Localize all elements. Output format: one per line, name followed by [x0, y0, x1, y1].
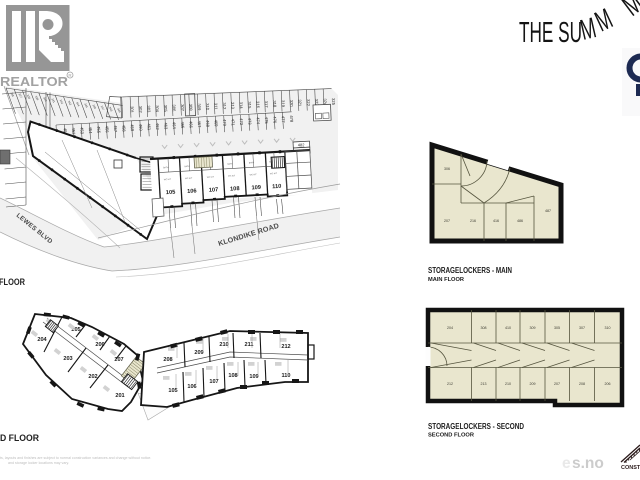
- svg-text:D FLOOR: D FLOOR: [0, 433, 39, 444]
- svg-text:106: 106: [187, 188, 197, 195]
- svg-text:477: 477: [281, 116, 286, 124]
- svg-text:305: 305: [554, 326, 560, 330]
- svg-text:473: 473: [247, 118, 252, 126]
- svg-text:206: 206: [95, 342, 104, 348]
- svg-text:204: 204: [447, 326, 453, 330]
- svg-text:216: 216: [470, 219, 476, 223]
- svg-text:460: 460: [138, 124, 143, 132]
- svg-text:106: 106: [187, 384, 196, 390]
- svg-text:466: 466: [188, 121, 193, 129]
- svg-text:105: 105: [168, 388, 177, 394]
- svg-text:467: 467: [197, 120, 202, 128]
- svg-text:475: 475: [264, 117, 269, 125]
- svg-text:202: 202: [88, 374, 97, 380]
- svg-text:213: 213: [481, 382, 487, 386]
- svg-text:470: 470: [222, 119, 227, 127]
- svg-text:410: 410: [505, 326, 511, 330]
- svg-text:487: 487: [545, 209, 551, 213]
- svg-text:465: 465: [180, 121, 185, 129]
- svg-text:210: 210: [219, 342, 228, 348]
- svg-text:107: 107: [209, 187, 219, 194]
- svg-text:476: 476: [272, 116, 277, 124]
- svg-text:309: 309: [530, 326, 536, 330]
- svg-text:469: 469: [214, 119, 219, 127]
- svg-text:416: 416: [493, 219, 499, 223]
- svg-text:107: 107: [209, 379, 218, 385]
- svg-text:REALTOR: REALTOR: [0, 74, 69, 89]
- svg-text:207: 207: [444, 219, 450, 223]
- svg-text:208: 208: [163, 357, 172, 363]
- svg-text:310: 310: [605, 326, 611, 330]
- svg-text:306: 306: [444, 167, 450, 171]
- svg-text:208: 208: [579, 382, 585, 386]
- svg-text:472: 472: [239, 118, 244, 126]
- svg-text:108: 108: [228, 373, 237, 379]
- svg-text:452: 452: [71, 127, 76, 135]
- svg-text:CONST: CONST: [621, 465, 640, 471]
- svg-text:486: 486: [517, 219, 523, 223]
- svg-text:212: 212: [447, 382, 453, 386]
- svg-text:207: 207: [554, 382, 560, 386]
- svg-text:209: 209: [194, 350, 203, 356]
- svg-text:BATH: BATH: [163, 166, 169, 169]
- svg-text:458: 458: [121, 125, 126, 133]
- svg-text:MAIN FLOOR: MAIN FLOOR: [428, 277, 464, 283]
- svg-text:110: 110: [272, 184, 282, 191]
- svg-text:325: 325: [331, 98, 336, 106]
- svg-text:478: 478: [289, 115, 294, 123]
- svg-text:209: 209: [530, 382, 536, 386]
- svg-text:474: 474: [255, 117, 260, 125]
- svg-text:462: 462: [155, 123, 160, 131]
- svg-text:308: 308: [481, 326, 487, 330]
- svg-text:206: 206: [605, 382, 611, 386]
- svg-text:207: 207: [114, 357, 123, 363]
- svg-text:482: 482: [298, 142, 306, 147]
- svg-text:457: 457: [113, 125, 118, 133]
- svg-text:109: 109: [249, 374, 258, 380]
- svg-text:459: 459: [130, 124, 135, 132]
- svg-text:STORAGELOCKERS - SECOND: STORAGELOCKERS - SECOND: [428, 422, 524, 431]
- svg-text:109: 109: [251, 185, 261, 192]
- svg-text:463: 463: [163, 122, 168, 130]
- svg-text:471: 471: [230, 119, 235, 127]
- svg-text:s.no: s.no: [572, 455, 604, 472]
- svg-text:204: 204: [37, 337, 47, 343]
- svg-text:454: 454: [88, 127, 93, 135]
- svg-text:455: 455: [96, 126, 101, 134]
- svg-text:FLOOR: FLOOR: [0, 277, 25, 288]
- svg-text:e: e: [562, 455, 571, 472]
- svg-text:THE SU: THE SU: [519, 17, 582, 49]
- svg-text:STORAGELOCKERS - MAIN: STORAGELOCKERS - MAIN: [428, 266, 512, 275]
- svg-text:105: 105: [166, 190, 176, 197]
- svg-text:461: 461: [146, 123, 151, 131]
- svg-text:110: 110: [281, 373, 290, 379]
- svg-text:ts, layouts and finishes are s: ts, layouts and finishes are subject to …: [0, 456, 151, 460]
- svg-text:SECOND FLOOR: SECOND FLOOR: [428, 433, 474, 439]
- svg-text:210: 210: [505, 382, 511, 386]
- svg-text:468: 468: [205, 120, 210, 128]
- svg-text:and storage locker locations m: and storage locker locations may vary.: [8, 461, 69, 465]
- svg-text:BATH: BATH: [249, 161, 255, 164]
- svg-text:307: 307: [579, 326, 585, 330]
- svg-text:456: 456: [105, 126, 110, 134]
- svg-text:201: 201: [115, 393, 124, 399]
- svg-text:464: 464: [172, 122, 177, 130]
- svg-text:108: 108: [230, 186, 240, 193]
- svg-text:453: 453: [79, 127, 84, 135]
- svg-text:203: 203: [63, 356, 72, 362]
- svg-text:212: 212: [281, 344, 290, 350]
